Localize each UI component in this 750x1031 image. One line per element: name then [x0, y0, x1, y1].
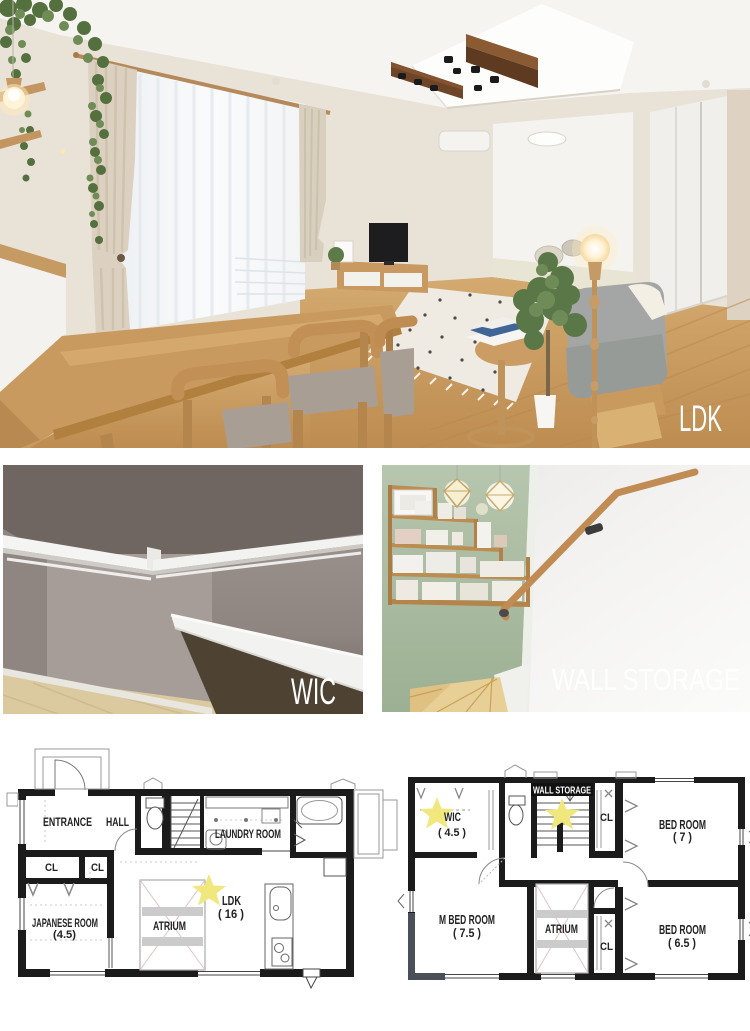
- svg-text:WALL STORAGE: WALL STORAGE: [552, 662, 740, 697]
- svg-text:(4.5): (4.5): [53, 929, 76, 941]
- svg-text:CL: CL: [91, 862, 104, 874]
- svg-text:CL: CL: [600, 812, 613, 824]
- svg-text:CL: CL: [45, 862, 58, 874]
- svg-text:ENTRANCE: ENTRANCE: [43, 815, 92, 829]
- svg-text:WALL STORAGE: WALL STORAGE: [533, 785, 591, 797]
- svg-text:( 7 ): ( 7 ): [673, 830, 692, 844]
- svg-text:ATRIUM: ATRIUM: [545, 922, 578, 936]
- svg-text:ATRIUM: ATRIUM: [153, 919, 186, 933]
- svg-text:( 6.5 ): ( 6.5 ): [668, 936, 696, 950]
- svg-text:JAPANESE ROOM: JAPANESE ROOM: [32, 916, 98, 930]
- svg-text:M BED ROOM: M BED ROOM: [439, 912, 495, 927]
- svg-text:BED ROOM: BED ROOM: [659, 922, 706, 937]
- svg-text:( 4.5 ): ( 4.5 ): [438, 827, 466, 839]
- svg-text:WIC: WIC: [291, 671, 336, 712]
- svg-text:CL: CL: [600, 941, 613, 953]
- svg-text:LDK: LDK: [222, 893, 241, 908]
- svg-text:LAUNDRY ROOM: LAUNDRY ROOM: [215, 827, 281, 841]
- svg-text:LDK: LDK: [679, 398, 722, 439]
- svg-text:HALL: HALL: [106, 815, 129, 829]
- svg-text:WIC: WIC: [444, 810, 461, 824]
- svg-text:( 16 ): ( 16 ): [218, 907, 244, 921]
- svg-text:( 7.5 ): ( 7.5 ): [453, 926, 481, 940]
